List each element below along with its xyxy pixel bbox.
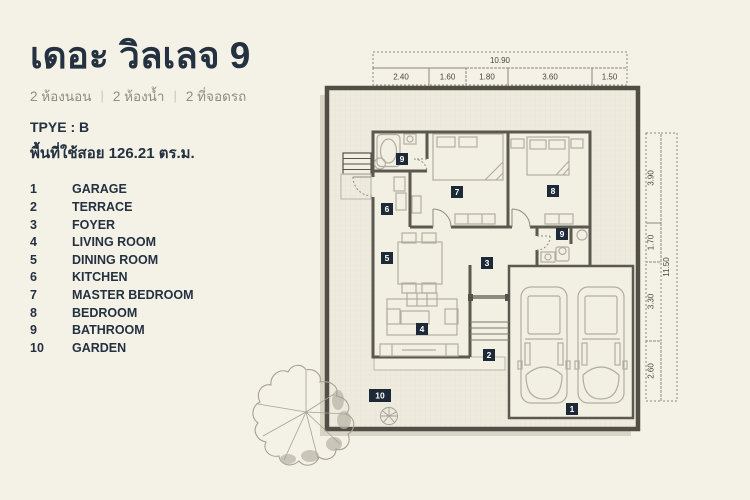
- svg-text:2.40: 2.40: [393, 73, 409, 82]
- svg-text:4: 4: [420, 324, 425, 334]
- marker-terrace: 2: [483, 349, 495, 361]
- marker-living: 4: [416, 323, 428, 335]
- marker-bathroom-2: 9: [556, 228, 568, 240]
- svg-text:11.50: 11.50: [662, 257, 671, 277]
- svg-text:6: 6: [385, 204, 390, 214]
- dimension-top-labels: 10.90 2.40 1.60 1.80 3.60 1.50: [393, 56, 618, 82]
- svg-text:10: 10: [375, 391, 385, 401]
- marker-bedroom: 8: [547, 185, 559, 197]
- dimension-right-labels: 3.90 1.70 3.30 2.60 11.50: [647, 170, 672, 379]
- marker-garage: 1: [566, 403, 578, 415]
- svg-text:1.60: 1.60: [440, 73, 456, 82]
- svg-text:3.60: 3.60: [542, 73, 558, 82]
- svg-text:7: 7: [455, 187, 460, 197]
- svg-text:10.90: 10.90: [490, 56, 511, 65]
- svg-text:2.60: 2.60: [647, 363, 656, 379]
- svg-text:1: 1: [570, 404, 575, 414]
- svg-text:3: 3: [485, 258, 490, 268]
- svg-text:3.90: 3.90: [647, 170, 656, 186]
- svg-text:1.70: 1.70: [647, 234, 656, 250]
- marker-garden: 10: [369, 389, 391, 402]
- svg-text:3.30: 3.30: [647, 293, 656, 309]
- floorplan-drawing: 1 2 3 4 5 6 7 8 9 9 10 10.90 2.40 1.60 1…: [0, 0, 750, 500]
- svg-text:8: 8: [551, 186, 556, 196]
- svg-text:2: 2: [487, 350, 492, 360]
- floorplan-page: เดอะ วิลเลจ 9 2 ห้องนอน | 2 ห้องน้ำ | 2 …: [0, 0, 750, 500]
- svg-text:9: 9: [560, 229, 565, 239]
- marker-foyer: 3: [481, 257, 493, 269]
- svg-text:9: 9: [400, 154, 405, 164]
- marker-bathroom-1: 9: [396, 153, 408, 165]
- marker-dining: 5: [381, 252, 393, 264]
- svg-text:1.50: 1.50: [602, 73, 618, 82]
- marker-master-bedroom: 7: [451, 186, 463, 198]
- svg-text:5: 5: [385, 253, 390, 263]
- svg-text:1.80: 1.80: [479, 73, 495, 82]
- marker-kitchen: 6: [381, 203, 393, 215]
